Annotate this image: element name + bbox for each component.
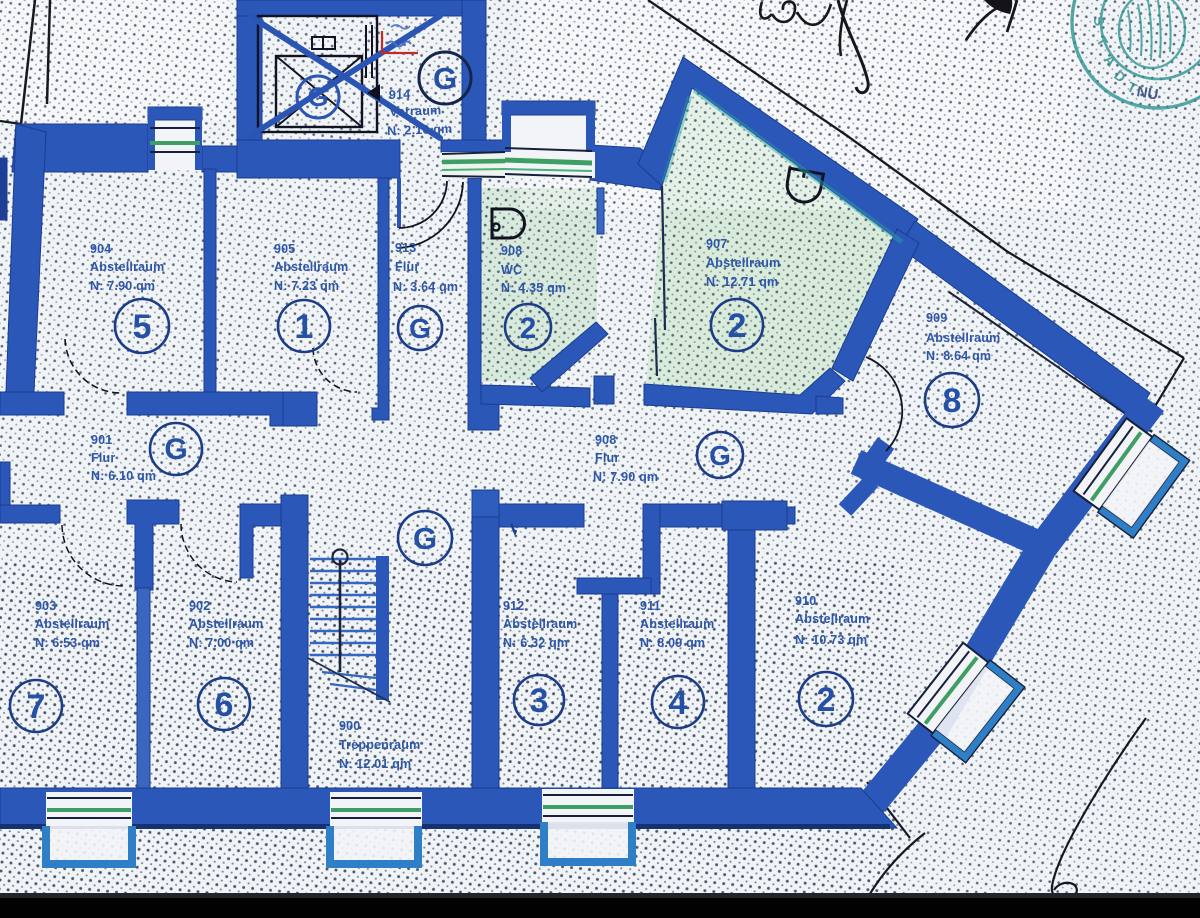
svg-text:G: G <box>709 440 731 471</box>
svg-text:903: 903 <box>35 599 56 613</box>
svg-text:2: 2 <box>817 681 836 719</box>
svg-text:G: G <box>164 433 187 466</box>
svg-text:G: G <box>413 521 437 556</box>
svg-text:913: 913 <box>395 241 416 255</box>
svg-text:905: 905 <box>274 242 295 256</box>
svg-text:Abstellraum: Abstellraum <box>274 260 348 274</box>
svg-text:N: 8.09 qm: N: 8.09 qm <box>640 636 705 650</box>
svg-text:N: 12.71 qm: N: 12.71 qm <box>706 275 778 289</box>
svg-text:Flur: Flur <box>395 260 419 274</box>
svg-text:WC: WC <box>501 263 522 277</box>
svg-text:G: G <box>433 61 457 96</box>
svg-text:N: 3.64 qm: N: 3.64 qm <box>393 280 458 294</box>
svg-text:911: 911 <box>640 599 661 613</box>
svg-text:914: 914 <box>389 87 411 102</box>
svg-text:G: G <box>307 82 328 112</box>
svg-text:Flur: Flur <box>595 451 619 465</box>
svg-text:N: 2.10 qm: N: 2.10 qm <box>387 122 453 138</box>
svg-text:Abstellraum: Abstellraum <box>640 617 714 631</box>
svg-text:Abstellraum: Abstellraum <box>926 331 1000 345</box>
svg-text:N: 4.35 qm: N: 4.35 qm <box>501 281 566 295</box>
svg-text:N: 6.10 qm: N: 6.10 qm <box>91 469 156 483</box>
svg-text:901: 901 <box>91 433 112 447</box>
svg-text:6: 6 <box>215 686 234 724</box>
svg-text:7: 7 <box>27 688 46 726</box>
svg-text:Flur: Flur <box>91 451 115 465</box>
svg-text:2: 2 <box>728 307 747 345</box>
svg-text:N: 7.90 qm: N: 7.90 qm <box>90 279 155 293</box>
svg-text:908: 908 <box>595 433 616 447</box>
svg-text:907: 907 <box>706 237 727 251</box>
svg-text:5: 5 <box>133 308 152 346</box>
svg-text:Abstellraum: Abstellraum <box>795 612 869 626</box>
svg-text:N: 6.53 qm: N: 6.53 qm <box>35 636 100 650</box>
svg-text:902: 902 <box>189 599 210 613</box>
svg-text:N: 7.00 qm: N: 7.00 qm <box>189 636 254 650</box>
svg-text:910: 910 <box>795 594 816 608</box>
svg-text:900: 900 <box>339 719 360 733</box>
svg-text:Abstellraum: Abstellraum <box>706 256 780 270</box>
svg-text:4: 4 <box>669 684 688 722</box>
svg-text:909: 909 <box>926 311 947 325</box>
svg-text:904: 904 <box>90 242 111 256</box>
svg-text:G: G <box>409 313 431 344</box>
svg-text:N: 12.01 qm: N: 12.01 qm <box>339 757 411 771</box>
svg-text:Abstellraum: Abstellraum <box>189 617 263 631</box>
svg-text:8: 8 <box>943 382 962 420</box>
svg-text:Abstellraum: Abstellraum <box>35 617 109 631</box>
svg-text:N: 6.32 qm: N: 6.32 qm <box>503 636 568 650</box>
svg-text:908: 908 <box>501 244 522 258</box>
svg-text:N: 7.23 qm: N: 7.23 qm <box>274 279 339 293</box>
svg-text:N: 10.73 qm: N: 10.73 qm <box>795 633 867 647</box>
svg-text:Abstellraum: Abstellraum <box>503 617 577 631</box>
svg-text:3: 3 <box>530 682 549 720</box>
svg-text:2: 2 <box>520 312 537 345</box>
svg-text:N: 7.90 qm: N: 7.90 qm <box>593 470 658 484</box>
svg-text:N: 8.64 qm: N: 8.64 qm <box>926 349 991 363</box>
svg-text:1: 1 <box>295 308 314 346</box>
svg-text:Vorraum: Vorraum <box>389 103 441 119</box>
svg-text:Treppenraum: Treppenraum <box>339 738 420 752</box>
svg-text:Abstellraum: Abstellraum <box>90 260 164 274</box>
svg-text:912: 912 <box>503 599 524 613</box>
